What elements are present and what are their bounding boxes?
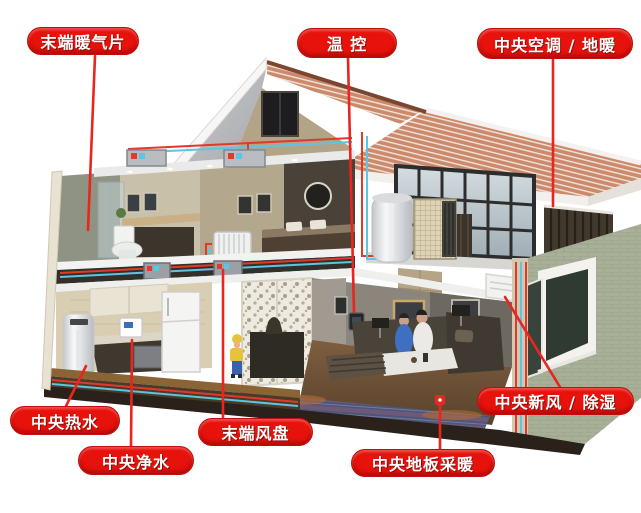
house-illustration [0, 0, 641, 513]
console-table [250, 332, 304, 378]
water-heater-tank [63, 314, 94, 377]
label-terminal-radiator: 末端暖气片 [27, 27, 139, 55]
heat-pump-outdoor-unit [414, 199, 456, 259]
plant [116, 208, 126, 218]
label-thermostat: 温 控 [297, 28, 397, 58]
label-central-hot-water: 中央热水 [10, 406, 120, 435]
label-central-fresh-air-dehumidification: 中央新风 / 除湿 [477, 387, 634, 415]
leader-central-water-purification [131, 340, 132, 446]
wall-art [335, 297, 347, 314]
bathroom-mirror [127, 194, 140, 212]
bathroom-mirror [144, 193, 157, 211]
buffer-tank [372, 193, 412, 262]
wall-art [257, 194, 271, 212]
child-figure [230, 334, 243, 378]
round-wall-art [305, 183, 331, 209]
refrigerator [162, 292, 200, 372]
diagram-canvas: 末端暖气片 温 控 中央空调 / 地暖 中央热水 中央净水 末端风盘 中央地板采… [0, 0, 641, 513]
wall-art [238, 196, 252, 214]
label-central-water-purification: 中央净水 [78, 446, 194, 475]
wall-cut-edge-pipes [512, 258, 528, 444]
water-purifier [120, 318, 142, 337]
label-terminal-fan-coil: 末端风盘 [198, 418, 313, 446]
label-central-floor-heating: 中央地板采暖 [351, 449, 495, 477]
oven [134, 346, 162, 368]
label-central-ac-floor-heating: 中央空调 / 地暖 [477, 28, 633, 59]
